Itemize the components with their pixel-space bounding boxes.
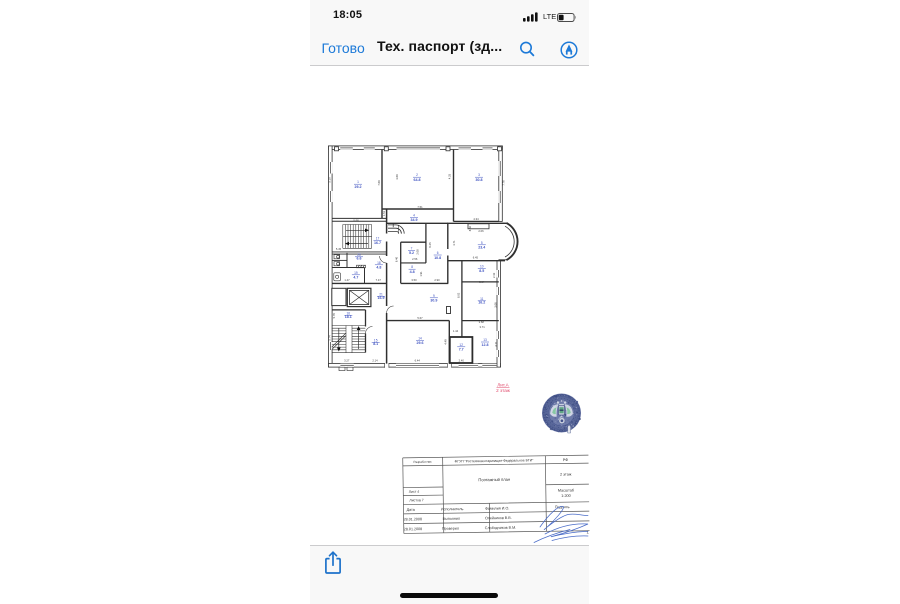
svg-text:4.8: 4.8 (376, 266, 381, 270)
svg-text:5.2: 5.2 (409, 251, 414, 255)
svg-text:4.7: 4.7 (353, 276, 358, 280)
svg-text:6.25: 6.25 (428, 242, 432, 248)
svg-text:30.8: 30.8 (476, 178, 483, 182)
svg-text:2.06: 2.06 (478, 229, 484, 233)
svg-text:2.14: 2.14 (372, 359, 378, 363)
svg-text:14: 14 (418, 336, 422, 340)
svg-text:3.64: 3.64 (479, 280, 485, 284)
svg-text:1:200: 1:200 (561, 494, 571, 498)
svg-text:1.91: 1.91 (419, 271, 423, 277)
svg-text:6.44: 6.44 (415, 359, 421, 363)
svg-text:7: 7 (411, 246, 413, 250)
svg-text:34.9: 34.9 (411, 218, 418, 222)
svg-text:Олейников В.В.: Олейников В.В. (485, 516, 512, 520)
svg-text:Лист 4: Лист 4 (409, 490, 420, 494)
svg-text:2 этаж: 2 этаж (496, 388, 511, 393)
svg-text:3.68: 3.68 (479, 320, 485, 324)
svg-text:3.71: 3.71 (479, 325, 485, 329)
svg-text:6.45: 6.45 (473, 256, 479, 260)
svg-text:5.45: 5.45 (336, 247, 342, 251)
svg-text:5.74: 5.74 (328, 335, 332, 341)
svg-text:4.25: 4.25 (448, 173, 452, 179)
svg-text:2.56: 2.56 (412, 257, 418, 261)
svg-text:ФГУП "Ростехинвентаризация-Фед: ФГУП "Ростехинвентаризация-Федеральное Б… (455, 458, 535, 463)
svg-text:17: 17 (376, 236, 380, 240)
svg-text:64.8: 64.8 (414, 178, 421, 182)
svg-text:Масштаб: Масштаб (558, 488, 575, 492)
svg-text:4: 4 (413, 213, 415, 217)
svg-text:29.6: 29.6 (417, 341, 424, 345)
svg-text:10: 10 (480, 264, 484, 268)
svg-text:Лит.А: Лит.А (497, 382, 509, 387)
svg-text:5.10: 5.10 (328, 177, 332, 183)
svg-text:2: 2 (416, 173, 418, 177)
svg-text:1.51: 1.51 (382, 210, 386, 216)
svg-text:8.5: 8.5 (479, 269, 484, 273)
svg-text:7.69: 7.69 (377, 180, 381, 186)
svg-text:4.49: 4.49 (444, 339, 448, 345)
svg-text:12: 12 (459, 343, 463, 347)
svg-text:РФ: РФ (563, 458, 569, 462)
svg-text:16.9: 16.9 (378, 296, 385, 300)
svg-text:3.27: 3.27 (344, 359, 350, 363)
svg-text:7.47: 7.47 (376, 278, 382, 282)
svg-text:3.69: 3.69 (395, 174, 399, 180)
svg-text:8.02: 8.02 (457, 292, 461, 298)
svg-text:8.1: 8.1 (373, 342, 378, 346)
svg-text:Проверил: Проверил (442, 527, 459, 531)
svg-text:23.4: 23.4 (478, 246, 485, 250)
svg-text:5.76: 5.76 (332, 313, 336, 319)
svg-text:5: 5 (481, 241, 483, 245)
svg-text:5.67: 5.67 (417, 316, 423, 320)
svg-text:8: 8 (411, 265, 413, 269)
svg-text:6: 6 (437, 251, 439, 255)
svg-text:4.8: 4.8 (410, 270, 415, 274)
svg-text:3.50: 3.50 (411, 278, 417, 282)
svg-text:18.1: 18.1 (345, 315, 352, 319)
svg-text:13: 13 (483, 338, 487, 342)
svg-text:Разработчик: Разработчик (413, 460, 432, 464)
svg-text:10.8: 10.8 (434, 256, 441, 260)
svg-text:7.76: 7.76 (502, 180, 506, 186)
svg-text:6.6: 6.6 (357, 257, 362, 261)
svg-text:5.98: 5.98 (353, 219, 359, 223)
svg-text:19: 19 (354, 271, 358, 275)
svg-text:18: 18 (377, 261, 381, 265)
svg-text:12.8: 12.8 (482, 343, 489, 347)
svg-text:6.40: 6.40 (395, 256, 399, 262)
svg-text:Исполнитель: Исполнитель (441, 507, 463, 511)
svg-text:16.2: 16.2 (478, 301, 485, 305)
svg-text:1.44: 1.44 (453, 329, 459, 333)
svg-text:Дата: Дата (407, 508, 416, 512)
svg-text:1.47: 1.47 (344, 278, 350, 282)
svg-text:Слободчиков В.М.: Слободчиков В.М. (485, 526, 516, 530)
svg-text:28.01.2008: 28.01.2008 (404, 517, 423, 521)
svg-text:2.40: 2.40 (459, 359, 465, 363)
svg-text:3: 3 (478, 173, 480, 177)
svg-text:3.71: 3.71 (452, 240, 456, 246)
svg-text:7.7: 7.7 (459, 348, 464, 352)
svg-text:2.42: 2.42 (492, 272, 496, 278)
svg-text:8.50: 8.50 (468, 225, 472, 231)
svg-text:1: 1 (357, 180, 359, 184)
svg-text:Фамилия И.О.: Фамилия И.О. (485, 506, 509, 510)
svg-text:2.90: 2.90 (434, 278, 440, 282)
svg-text:29.2: 29.2 (355, 185, 362, 189)
svg-text:9: 9 (433, 294, 435, 298)
svg-text:1: 1 (586, 529, 589, 534)
svg-text:3.06: 3.06 (494, 302, 498, 308)
svg-text:2.08: 2.08 (416, 249, 420, 255)
svg-text:7.51: 7.51 (417, 205, 423, 209)
svg-text:Выполнил: Выполнил (443, 517, 461, 521)
svg-text:2 этаж: 2 этаж (560, 472, 572, 476)
svg-text:Поэтажный план: Поэтажный план (478, 477, 510, 482)
svg-text:28.01.2008: 28.01.2008 (404, 527, 423, 531)
svg-text:4.21: 4.21 (494, 341, 498, 347)
svg-text:Листов 7: Листов 7 (409, 498, 423, 502)
svg-text:4.34: 4.34 (473, 217, 479, 221)
svg-text:16.7: 16.7 (374, 241, 381, 245)
svg-text:30.9: 30.9 (430, 299, 437, 303)
